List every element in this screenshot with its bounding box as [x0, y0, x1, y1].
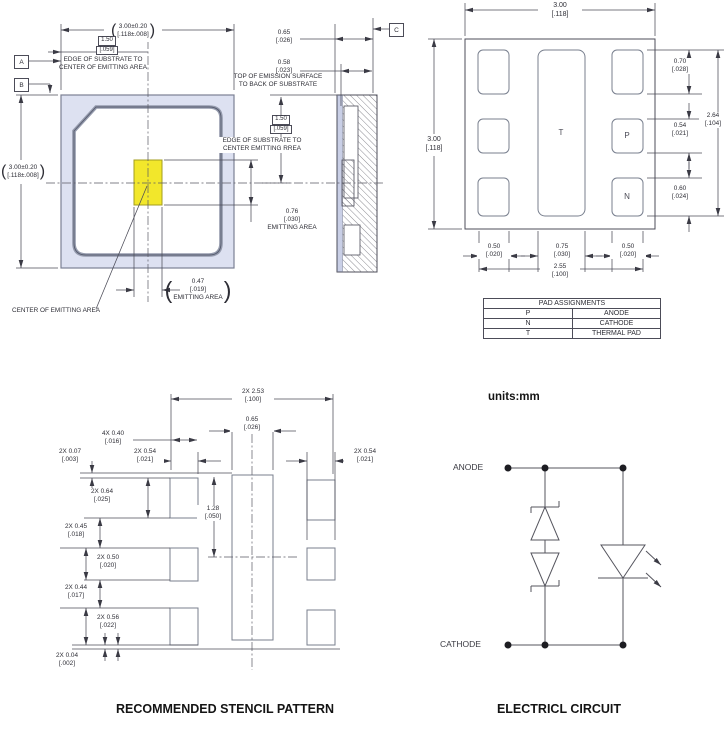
table-row: P ANODE: [484, 309, 660, 319]
pad-assignments-table: PAD ASSIGNMENTS P ANODE N CATHODE T THER…: [483, 298, 661, 339]
circuit-drawing: [505, 465, 662, 649]
anode-net-label: ANODE: [453, 462, 483, 472]
table-row: N CATHODE: [484, 319, 660, 329]
side-edge-center-dim: 1.50 [.059]: [264, 115, 298, 134]
side-thickness-dim: 0.65[.026]: [268, 29, 300, 45]
pad-span-dim: 2.64[.104]: [699, 112, 727, 128]
top-pad-height-dim: 0.70[.028]: [663, 58, 697, 74]
center-of-emitting-area-note: CENTER OF EMITTING AREA: [10, 307, 102, 315]
stencil-col-left-dim: 2X 0.54[.021]: [126, 448, 164, 464]
stencil-gap-dim: 4X 0.40[.016]: [93, 430, 133, 446]
stencil-col-right-dim: 2X 0.54[.021]: [344, 448, 386, 464]
circuit-title: ELECTRICL CIRCUIT: [479, 702, 639, 716]
n-pad-height-dim: 0.60[.024]: [663, 185, 697, 201]
light-emission-arrows: [646, 551, 661, 587]
paren-close: ): [150, 21, 155, 41]
p-pad-height-dim: 0.54[.021]: [663, 122, 697, 138]
datum-b: B: [14, 78, 29, 92]
led-symbol: [598, 468, 648, 645]
front-height-dim: ( 3.00±0.20[.118±.008] ): [0, 160, 46, 184]
datum-a: A: [14, 55, 29, 69]
tvs-diode-lower: [531, 540, 559, 645]
stencil-pad-left-2: [170, 548, 198, 581]
bottom-height-dim: 3.00[.118]: [412, 134, 456, 156]
datum-c: C: [389, 23, 404, 37]
table-row: T THERMAL PAD: [484, 329, 660, 338]
thermal-pad-label: T: [552, 128, 570, 137]
cathode-net-label: CATHODE: [440, 639, 481, 649]
emission-surface-note: TOP OF EMISSION SURFACETO BACK OF SUBSTR…: [226, 73, 330, 89]
stencil-pad-right-2: [307, 548, 335, 580]
left-col-width-dim: 0.50[.020]: [477, 243, 511, 259]
col-span-dim: 2.55[.100]: [540, 263, 580, 279]
center-col-width-dim: 0.75[.030]: [542, 243, 582, 259]
stencil-pad-left-3: [170, 608, 198, 645]
anode-pad-label: P: [618, 131, 636, 140]
stencil-offset-bottom-dim: 2X 0.04[.002]: [46, 652, 88, 668]
stencil-offset-top-dim: 2X 0.07[.003]: [50, 448, 90, 464]
stencil-center-half-dim: 1.28[.050]: [197, 505, 229, 521]
pad-table-title: PAD ASSIGNMENTS: [484, 299, 660, 309]
stencil-center-width-dim: 0.65[.026]: [230, 416, 274, 432]
emitting-height-dim: 0.76 [.030] EMITTING AREA: [268, 208, 316, 232]
pad-left-top: [478, 50, 509, 94]
pad-left-bottom: [478, 178, 509, 216]
stencil-span-dim: 2X 2.53[.100]: [232, 388, 274, 404]
tvs-diode-upper: [531, 468, 559, 540]
stencil-pad-left-1: [170, 478, 198, 518]
cathode-pad-label: N: [618, 192, 636, 201]
stencil-pad-center: [232, 475, 273, 640]
units-note: units:mm: [488, 391, 540, 403]
front-edge-center-dim: 1.50 [.059]: [90, 36, 124, 55]
stencil-row1-dim: 2X 0.64[.025]: [84, 488, 120, 504]
bottom-width-dim: 3.00[.118]: [538, 0, 582, 22]
emitting-area-rect: [134, 160, 162, 205]
pad-left-middle: [478, 119, 509, 153]
side-edge-note: EDGE OF SUBSTRATE TOCENTER EMITTING RREA: [210, 137, 314, 153]
stencil-row3-dim: 2X 0.56[.022]: [90, 614, 126, 630]
stencil-title: RECOMMENDED STENCIL PATTERN: [105, 702, 345, 716]
front-edge-note: EDGE OF SUBSTRATE TOCENTER OF EMITTING A…: [46, 56, 160, 72]
stencil-gap2-dim: 2X 0.44[.017]: [58, 584, 94, 600]
stencil-pad-right-1: [307, 480, 335, 520]
emitting-width-dim: ( 0.47 [.019] EMITTING AREA ): [166, 274, 230, 306]
pad-right-top: [612, 50, 643, 94]
stencil-pad-right-3: [307, 610, 335, 645]
right-col-width-dim: 0.50[.020]: [610, 243, 646, 259]
stencil-gap1-dim: 2X 0.45[.018]: [58, 523, 94, 539]
stencil-row2-dim: 2X 0.50[.020]: [90, 554, 126, 570]
led-package-datasheet-drawing: ( 3.00±0.20[.118±.008] ) 1.50 [.059] EDG…: [0, 0, 727, 731]
